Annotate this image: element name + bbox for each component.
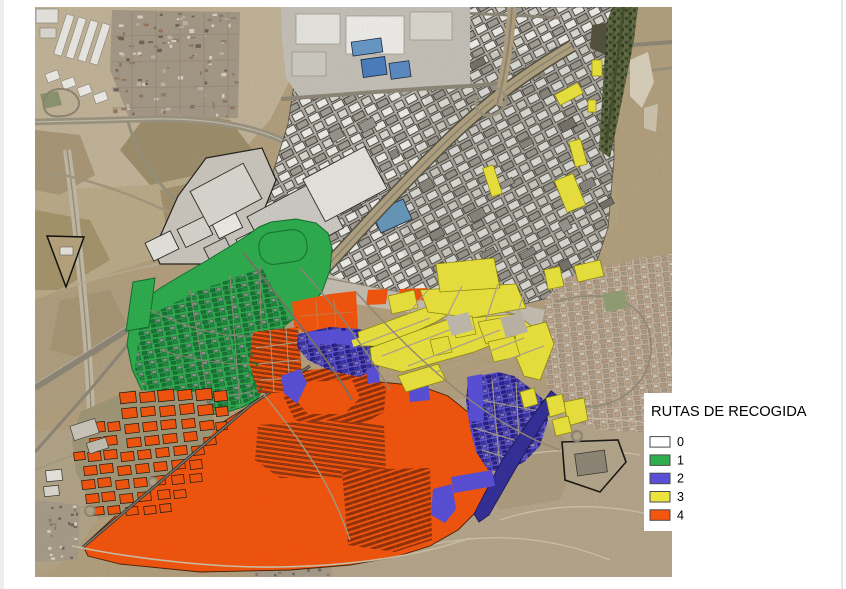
svg-text:RUTAS DE RECOGIDA: RUTAS DE RECOGIDA: [651, 404, 807, 420]
svg-text:0: 0: [677, 435, 684, 449]
svg-text:3: 3: [677, 490, 684, 504]
svg-text:1: 1: [677, 453, 684, 467]
svg-text:4: 4: [677, 508, 684, 522]
svg-text:2: 2: [677, 472, 684, 486]
